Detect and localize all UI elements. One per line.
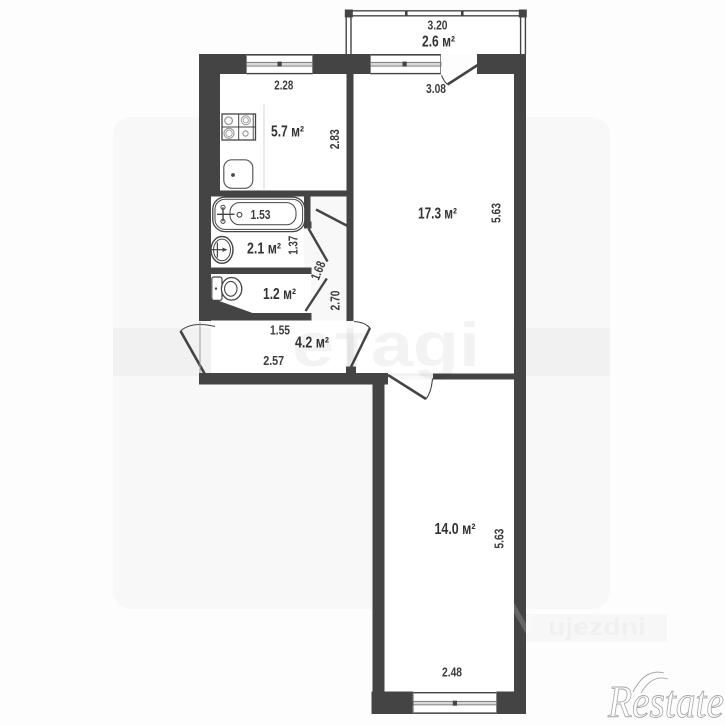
svg-text:1.55: 1.55 xyxy=(270,323,290,338)
svg-text:5.63: 5.63 xyxy=(492,529,507,549)
svg-text:2.28: 2.28 xyxy=(274,78,293,93)
svg-text:1.53: 1.53 xyxy=(251,207,271,222)
svg-text:3.20: 3.20 xyxy=(428,18,448,33)
svg-text:2.48: 2.48 xyxy=(442,665,462,680)
svg-text:2.1 м²: 2.1 м² xyxy=(247,240,281,257)
svg-text:2.70: 2.70 xyxy=(328,291,343,311)
svg-text:1.2 м²: 1.2 м² xyxy=(263,286,296,303)
svg-text:2.83: 2.83 xyxy=(327,129,342,149)
svg-text:5.7 м²: 5.7 м² xyxy=(271,124,304,141)
svg-text:17.3 м²: 17.3 м² xyxy=(418,206,457,223)
svg-text:Restate: Restate xyxy=(607,676,724,725)
svg-text:ujezdni: ujezdni xyxy=(548,614,646,641)
svg-text:3.08: 3.08 xyxy=(426,81,446,96)
svg-text:14.0 м²: 14.0 м² xyxy=(435,521,476,538)
svg-text:2.6 м²: 2.6 м² xyxy=(422,34,455,51)
svg-text:1.37: 1.37 xyxy=(285,236,300,255)
svg-text:N: N xyxy=(504,594,536,643)
svg-text:eтagi: eтagi xyxy=(292,311,480,380)
svg-text:2.57: 2.57 xyxy=(263,353,284,368)
svg-text:5.63: 5.63 xyxy=(488,203,503,223)
